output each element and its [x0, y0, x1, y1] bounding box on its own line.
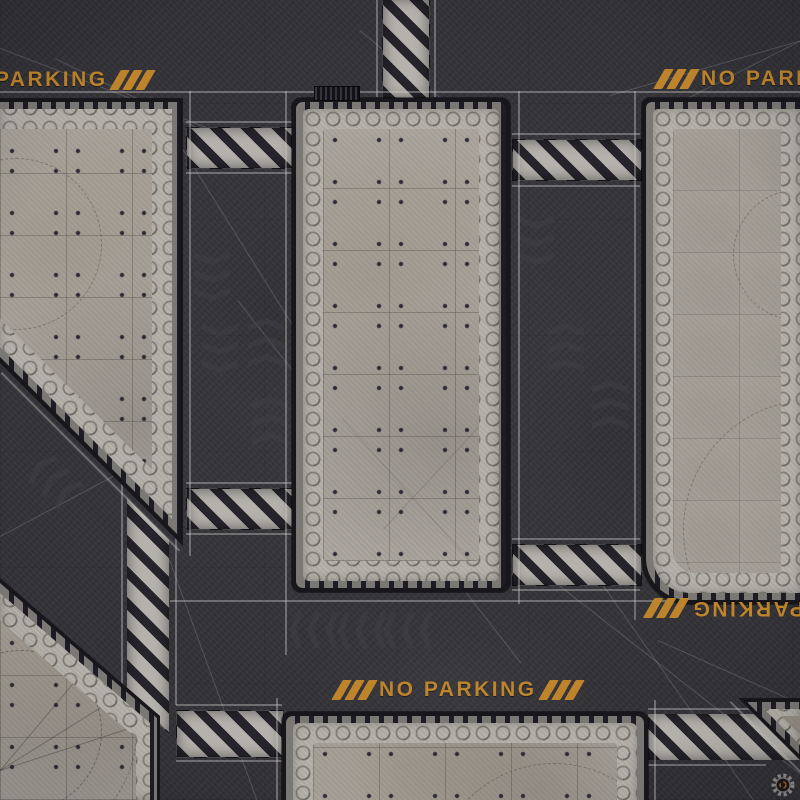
pad-concrete-surface: [313, 743, 617, 800]
road-edge-line: [518, 91, 520, 604]
chevron-marking-up: [592, 380, 628, 429]
no-parking-text: NO PARKING: [691, 597, 800, 619]
road-edge-line: [0, 91, 800, 93]
chevron-marking-down: [518, 216, 554, 265]
vent-grate: [314, 86, 360, 101]
pad-concrete-surface: [323, 129, 479, 561]
hazard-edge-line: [434, 0, 436, 97]
no-parking-label-bottom-center: NO PARKING: [330, 679, 586, 701]
concrete-seam: [342, 419, 479, 561]
hazard-stripe-band-top-vertical: [382, 0, 430, 99]
chevron-marking-left: [338, 613, 387, 649]
concrete-pad-center: [292, 98, 510, 592]
no-parking-text: NO PARKING: [379, 679, 537, 701]
hazard-edge-line: [186, 172, 292, 174]
hazard-edge-line: [186, 482, 292, 484]
hazard-slashes-icon: [337, 680, 372, 700]
no-parking-label-top-left: NO PARKING: [0, 69, 157, 91]
pad-circle-marking: [733, 189, 781, 321]
chevron-marking-up: [248, 318, 284, 367]
no-parking-label-right-rotated: NO PARKING: [642, 597, 800, 619]
hazard-edge-line: [376, 0, 378, 97]
chevron-marking-down: [202, 324, 238, 373]
hazard-stripe-band-bottom-left: [176, 710, 284, 758]
hazard-edge-line: [176, 760, 282, 762]
hazard-edge-line: [186, 121, 292, 123]
hazard-stripe-band-left-upper: [186, 127, 294, 169]
pad-concrete-surface: [673, 129, 781, 573]
hazard-edge-line: [512, 133, 640, 135]
chevron-marking-up: [252, 396, 288, 445]
chevron-marking-left: [384, 613, 433, 649]
hazard-edge-line: [512, 185, 640, 187]
hazard-edge-line: [176, 704, 282, 706]
road-edge-line: [285, 91, 287, 655]
concrete-pad-right: [642, 98, 800, 604]
road-edge-line: [634, 91, 636, 620]
chevron-marking-up: [548, 323, 584, 372]
hazard-edge-line: [512, 538, 640, 540]
hazard-edge-line: [512, 589, 640, 591]
concrete-pad-bottom-center: [282, 712, 648, 800]
road-edge-line: [121, 470, 123, 706]
pad-arc-marking: [433, 763, 617, 800]
hazard-slashes-icon: [115, 70, 150, 90]
no-parking-label-top-right: NO PARKING: [652, 68, 800, 90]
hazard-edge-line: [186, 533, 292, 535]
hazard-stripe-band-left-lower: [186, 488, 294, 530]
hazard-stripe-band-right-upper: [512, 139, 642, 181]
pad-circle-marking: [0, 158, 102, 330]
hazard-slashes-icon: [544, 680, 579, 700]
no-parking-text: NO PARKING: [0, 69, 108, 91]
road-edge-line: [189, 91, 191, 556]
road-edge-line: [276, 698, 278, 800]
hazard-slashes-icon: [659, 69, 694, 89]
gaming-mat-surface: NO PARKING NO PARKING NO PARKING NO PARK…: [0, 0, 800, 800]
pad-circle-marking: [683, 399, 781, 573]
survey-line: [169, 560, 259, 800]
concrete-seam: [383, 383, 479, 530]
chevron-marking-left: [290, 613, 339, 649]
hazard-stripe-band-right-lower: [512, 544, 642, 586]
hazard-slashes-icon: [649, 598, 684, 618]
gear-icon: [770, 772, 796, 798]
no-parking-text: NO PARKING: [701, 68, 800, 90]
chevron-marking-diagonal: [24, 450, 84, 510]
gear-logo: [770, 772, 796, 800]
hazard-edge-line: [648, 764, 766, 766]
road-edge-line: [654, 700, 656, 800]
chevron-marking-down: [194, 252, 230, 301]
